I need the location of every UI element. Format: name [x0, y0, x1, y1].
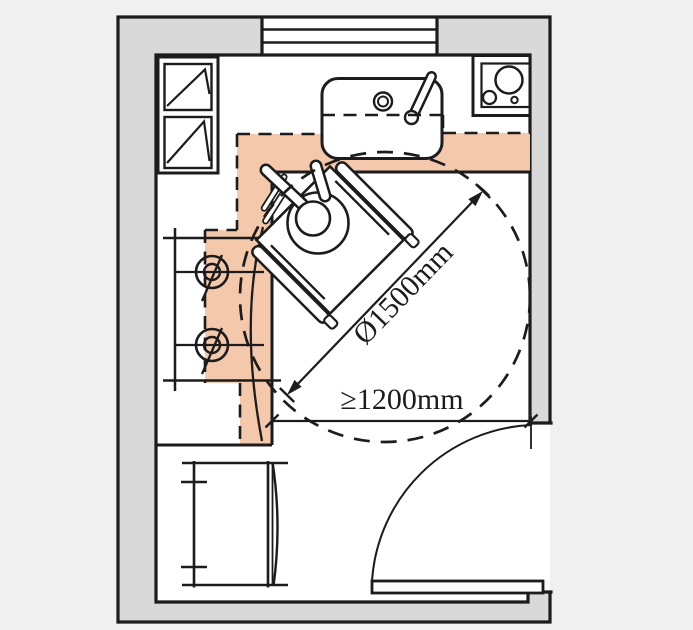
kitchen-sink [322, 77, 442, 159]
arm-reaching [316, 166, 325, 196]
door-jamb [528, 592, 550, 622]
door-leaf [372, 581, 543, 593]
door-clearance-label: ≥1200mm [340, 383, 463, 416]
corner-cooktop [473, 56, 530, 116]
wall-right [530, 17, 550, 423]
floor-plan-svg: Ø1500mm ≥1200mm [0, 0, 693, 630]
floor-plan-canvas: Ø1500mm ≥1200mm [0, 0, 693, 630]
head [296, 202, 330, 236]
wall-cabinet [158, 57, 218, 173]
drain-icon [374, 93, 392, 111]
wall-left [118, 17, 156, 622]
wall-bottom [118, 602, 550, 622]
